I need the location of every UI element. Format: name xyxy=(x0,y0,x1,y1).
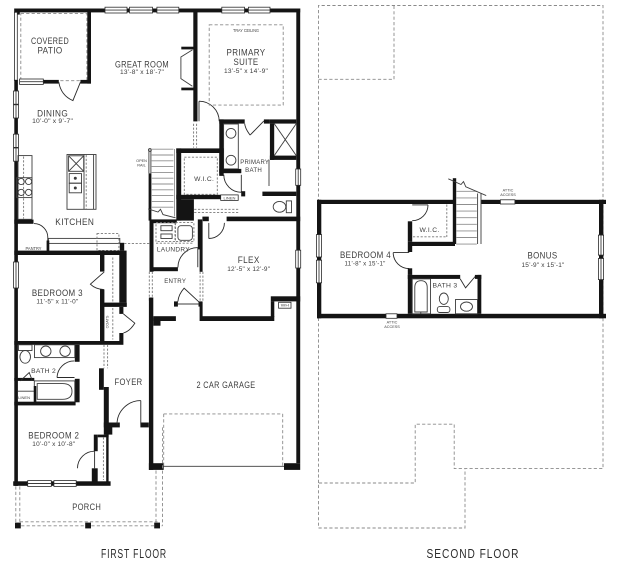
svg-text:BATH 3: BATH 3 xyxy=(433,282,458,289)
svg-text:11’-8" x 15’-1": 11’-8" x 15’-1" xyxy=(345,260,386,267)
svg-text:LAUNDRY: LAUNDRY xyxy=(157,246,190,253)
svg-text:12’-5" x 12’-9": 12’-5" x 12’-9" xyxy=(227,266,270,273)
svg-text:BATH: BATH xyxy=(245,167,262,174)
svg-text:10’-0" x 9’-7": 10’-0" x 9’-7" xyxy=(32,118,73,125)
svg-text:BEDROOM 3: BEDROOM 3 xyxy=(32,288,83,298)
svg-text:ATTIC: ATTIC xyxy=(503,188,514,192)
svg-text:PATIO: PATIO xyxy=(38,46,63,56)
svg-text:COVERED: COVERED xyxy=(31,36,69,46)
svg-text:PORCH: PORCH xyxy=(72,502,101,512)
svg-text:10’-0" x 10’-8": 10’-0" x 10’-8" xyxy=(32,441,75,448)
svg-text:ATTIC: ATTIC xyxy=(387,320,398,324)
svg-text:W.I.C.: W.I.C. xyxy=(420,227,440,234)
svg-text:DINING: DINING xyxy=(37,109,68,119)
svg-text:PRIMARY: PRIMARY xyxy=(240,159,269,166)
svg-text:FOYER: FOYER xyxy=(115,377,143,387)
svg-text:ACCESS: ACCESS xyxy=(384,325,400,329)
svg-text:KITCHEN: KITCHEN xyxy=(55,217,94,227)
svg-text:COATS: COATS xyxy=(106,315,110,328)
svg-text:LINEN: LINEN xyxy=(18,396,30,400)
svg-text:FLEX: FLEX xyxy=(238,255,260,265)
svg-text:15’-9" x 15’-1": 15’-9" x 15’-1" xyxy=(522,262,565,269)
svg-text:W.I.C.: W.I.C. xyxy=(194,176,214,183)
svg-text:PANTRY: PANTRY xyxy=(26,246,42,251)
svg-text:BEDROOM 4: BEDROOM 4 xyxy=(340,250,391,260)
svg-text:TRAY CEILING: TRAY CEILING xyxy=(233,28,259,33)
svg-text:PRIMARY: PRIMARY xyxy=(227,48,266,58)
svg-text:SECOND FLOOR: SECOND FLOOR xyxy=(427,547,520,561)
svg-text:WH: WH xyxy=(281,304,289,308)
svg-text:BONUS: BONUS xyxy=(528,250,558,260)
svg-text:FIRST FLOOR: FIRST FLOOR xyxy=(101,547,167,561)
svg-text:OPEN: OPEN xyxy=(136,159,147,163)
svg-text:ENTRY: ENTRY xyxy=(164,278,186,285)
svg-text:13’-5" x 14’-9": 13’-5" x 14’-9" xyxy=(224,68,268,75)
svg-text:BATH 2: BATH 2 xyxy=(31,368,56,375)
svg-text:2 CAR GARAGE: 2 CAR GARAGE xyxy=(197,380,256,390)
svg-text:BEDROOM 2: BEDROOM 2 xyxy=(28,431,79,441)
svg-text:RAIL: RAIL xyxy=(137,164,145,168)
svg-text:13’-8" x 18’-7": 13’-8" x 18’-7" xyxy=(120,69,164,76)
svg-text:LINEN: LINEN xyxy=(224,196,236,200)
svg-text:SUITE: SUITE xyxy=(234,57,259,67)
svg-text:11’-5" x 11’-0": 11’-5" x 11’-0" xyxy=(36,299,78,306)
svg-text:ACCESS: ACCESS xyxy=(500,193,516,197)
